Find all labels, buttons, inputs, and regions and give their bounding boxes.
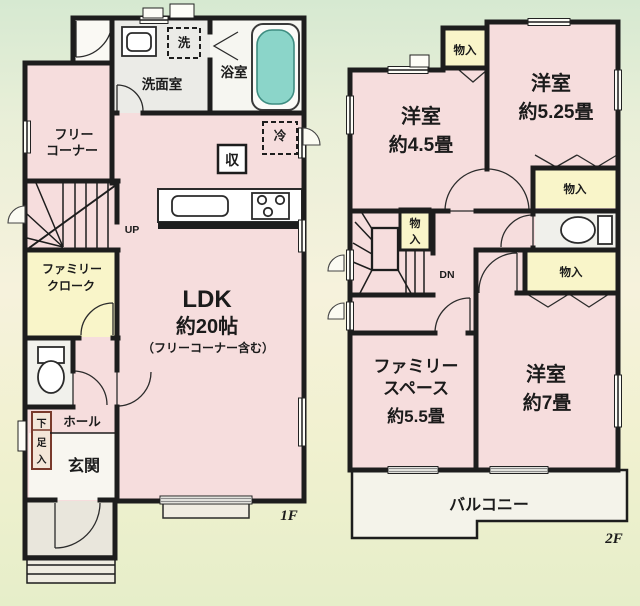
bathtub xyxy=(252,24,299,110)
label-closet-mid: 物入 xyxy=(564,182,587,196)
shutter-fan-2f-a xyxy=(328,255,344,271)
label-closet-stair-1: 物 xyxy=(410,216,421,230)
label-bathroom: 浴室 xyxy=(221,64,248,80)
kitchen-stove xyxy=(252,193,289,219)
kitchen-counter xyxy=(158,189,302,229)
label-shoe-2: 足 xyxy=(37,437,48,449)
label-room45-2: 約4.5畳 xyxy=(389,133,453,156)
label-ldk-area: 約20帖 xyxy=(176,314,238,338)
label-shoe-1: 下 xyxy=(37,418,47,430)
floor-label-2f: 2F xyxy=(604,531,623,547)
label-free-corner-1: フリー xyxy=(54,127,93,142)
label-closet-low: 物入 xyxy=(560,265,583,279)
floor-plan-2f: 洋室 約4.5畳 洋室 約5.25畳 ファミリー スペース 約5.5畳 洋室 約… xyxy=(328,19,627,548)
label-family-space-3: 約5.5畳 xyxy=(387,406,445,426)
marker-storage: 収 xyxy=(225,152,240,168)
porch xyxy=(27,501,115,556)
label-closet-top: 物入 xyxy=(454,43,477,57)
ldk-outdoor-step xyxy=(163,503,249,518)
kitchen-sink xyxy=(172,196,228,216)
vent-1f-a xyxy=(143,8,163,18)
label-room525-2: 約5.25畳 xyxy=(519,100,594,123)
label-entrance: 玄関 xyxy=(68,456,100,475)
label-closet-stair-2: 入 xyxy=(410,233,421,246)
floor-plan-image: フリー コーナー 洗面室 浴室 洗 冷 収 UP LDK 約20帖 （フリーコー… xyxy=(0,0,640,606)
label-room45-1: 洋室 xyxy=(401,104,441,128)
label-ldk-note: （フリーコーナー含む） xyxy=(142,340,274,355)
label-family-cloak-2: クローク xyxy=(47,279,95,293)
marker-fridge: 冷 xyxy=(274,128,287,143)
marker-washer: 洗 xyxy=(178,35,191,50)
label-washroom: 洗面室 xyxy=(142,76,183,92)
vent-1f-c xyxy=(18,421,26,451)
toilet-fixture-1f xyxy=(38,347,64,393)
marker-up: UP xyxy=(125,224,140,236)
marker-dn: DN xyxy=(439,269,454,281)
label-ldk: LDK xyxy=(182,286,232,313)
shutter-fan-1f-left xyxy=(8,206,25,223)
label-hall: ホール xyxy=(63,415,101,429)
label-room7-1: 洋室 xyxy=(526,362,566,386)
toilet-fixture-2f xyxy=(561,216,612,244)
label-room7-2: 約7畳 xyxy=(523,391,572,414)
label-shoe-3: 入 xyxy=(37,454,47,466)
label-family-cloak-1: ファミリー xyxy=(42,262,102,276)
floor-label-1f: 1F xyxy=(280,508,298,524)
label-family-space-2: スペース xyxy=(383,379,449,398)
vent-1f-b xyxy=(170,4,194,18)
label-family-space-1: ファミリー xyxy=(374,357,459,376)
vent-2f-a xyxy=(410,55,429,67)
washroom-sink xyxy=(122,27,156,56)
label-balcony: バルコニー xyxy=(449,496,529,514)
shutter-fan-2f-b xyxy=(328,303,344,319)
floor-plan-1f: フリー コーナー 洗面室 浴室 洗 冷 収 UP LDK 約20帖 （フリーコー… xyxy=(8,4,320,583)
label-room525-1: 洋室 xyxy=(531,71,571,95)
label-free-corner-2: コーナー xyxy=(46,143,98,158)
shutter-fan-1f-right xyxy=(303,128,320,145)
